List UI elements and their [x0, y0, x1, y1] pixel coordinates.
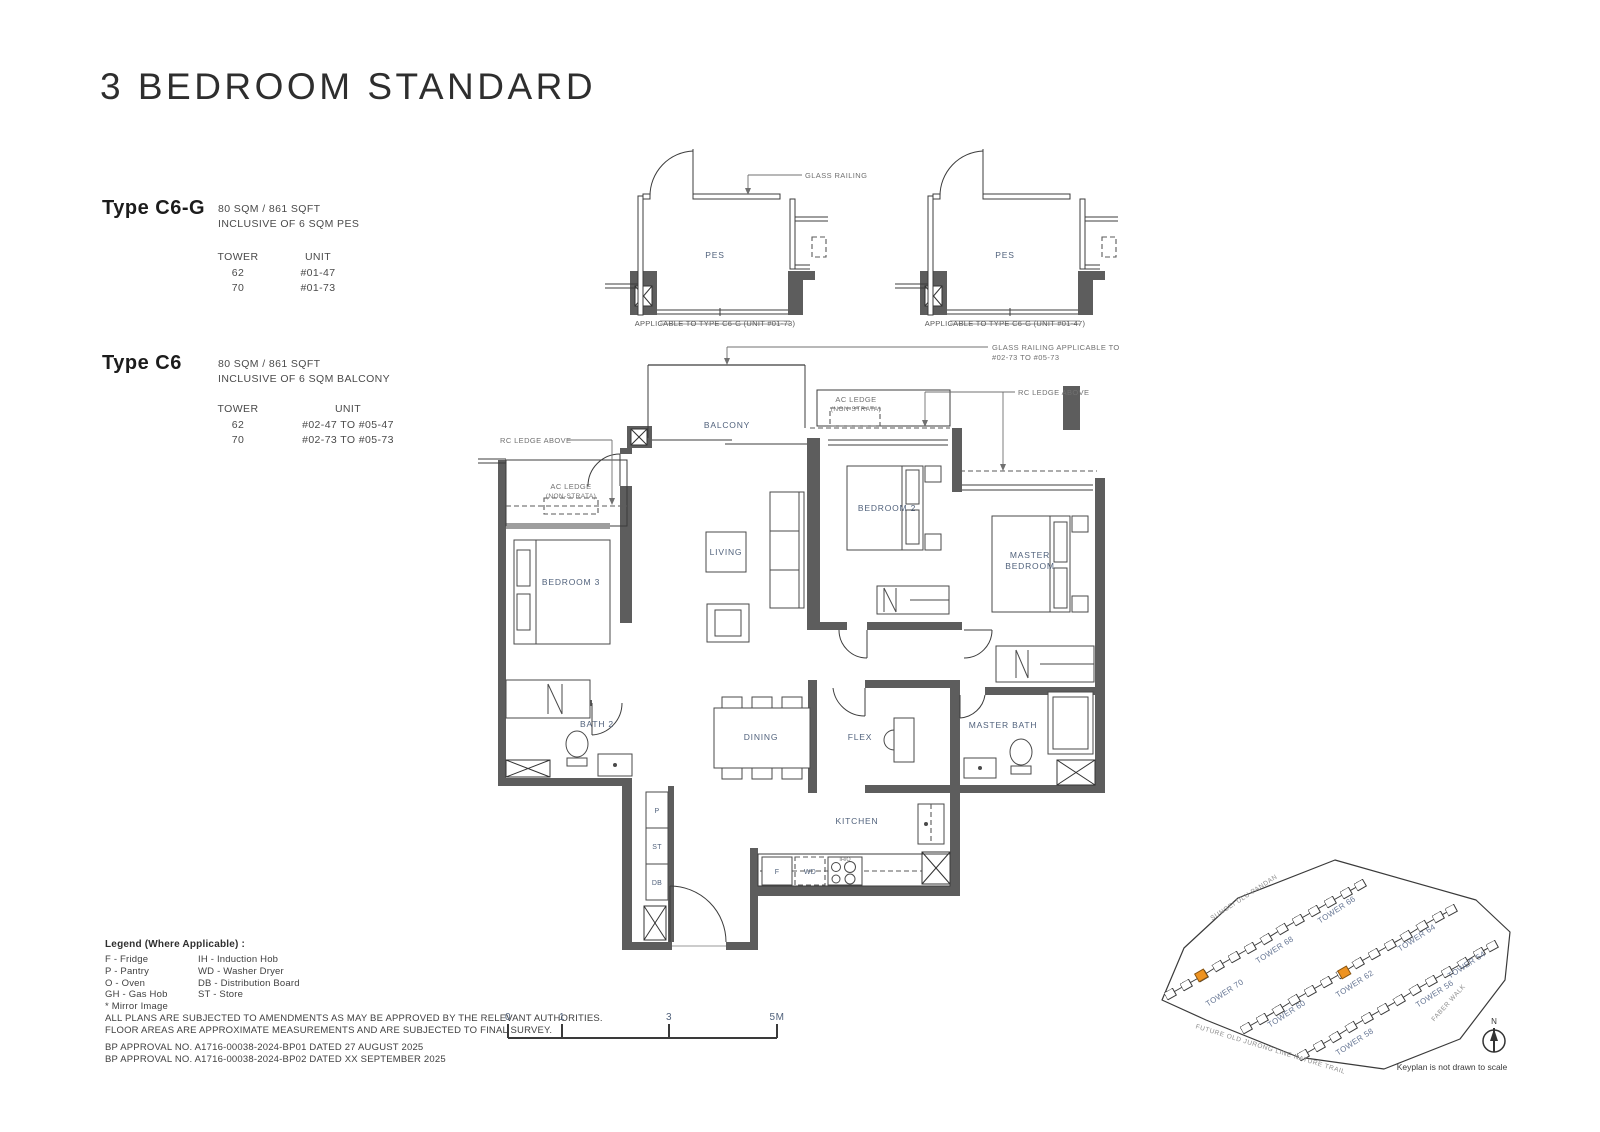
tower-label: TOWER 70 [1204, 977, 1245, 1008]
room-label-kitchen: KITCHEN [836, 816, 879, 826]
shaft-icon [644, 906, 666, 940]
street-label-sungei: SUNGEI ULU PANDAN [1209, 873, 1279, 922]
annotation-ac-ledge-left: AC LEDGE [550, 482, 591, 491]
shaft-icon [631, 429, 647, 445]
room-label-master-bedroom: BEDROOM [1005, 561, 1055, 571]
street-label-jurong-trail: FUTURE OLD JURONG LINE NATURE TRAIL [1195, 1023, 1346, 1075]
legend-item: F - Fridge [105, 954, 198, 966]
highlighted-unit [1195, 969, 1208, 982]
pes-caption-right: APPLICABLE TO TYPE C6-G (UNIT #01-47) [925, 319, 1086, 328]
keyplan: TOWER 70 TOWER 68 TOWER 66 TOWER 60 TOWE… [1148, 848, 1548, 1086]
tower-label: TOWER 58 [1334, 1026, 1375, 1057]
north-compass-icon: N [1483, 1017, 1505, 1052]
page-title: 3 BEDROOM STANDARD [100, 66, 596, 108]
legend-title: Legend (Where Applicable) : [105, 939, 300, 950]
annotation-ac-ledge-right: AC LEDGE [835, 395, 876, 404]
annotation-glass-railing: GLASS RAILING [745, 171, 867, 195]
type-c6g-table: TOWER UNIT 62 #01-47 70 #01-73 [213, 250, 373, 297]
annotation-rc-ledge-left: RC LEDGE ABOVE [500, 436, 571, 445]
room-label-master-bath: MASTER BATH [969, 720, 1038, 730]
room-label-balcony: BALCONY [704, 420, 750, 430]
unit-header: UNIT [263, 250, 373, 266]
shaft-icon [1057, 760, 1095, 785]
type-c6g-specs: 80 SQM / 861 SQFT INCLUSIVE OF 6 SQM PES [218, 202, 359, 232]
table-row: 70 #02-73 TO #05-73 [213, 433, 433, 449]
svg-text:#02-73 TO #05-73: #02-73 TO #05-73 [992, 353, 1059, 362]
room-label-bedroom3: BEDROOM 3 [542, 577, 600, 587]
room-label-flex: FLEX [848, 732, 872, 742]
legend: Legend (Where Applicable) : F - Fridge P… [105, 939, 300, 1013]
legend-item: WD - Washer Dryer [198, 966, 300, 978]
tower-label: TOWER 54 [1446, 949, 1487, 980]
room-label-bedroom2: BEDROOM 2 [858, 503, 916, 513]
type-c6-inclusive: INCLUSIVE OF 6 SQM BALCONY [218, 372, 390, 387]
table-header-row: TOWER UNIT [213, 250, 373, 266]
fixture-label-db: DB [652, 880, 662, 887]
annotation-glass-railing-note: GLASS RAILING APPLICABLE TO: [992, 343, 1120, 352]
legend-item: * Mirror Image [105, 1001, 198, 1013]
pes-diagrams: PES APPLICABLE TO TYPE C6-G (UNIT #01-73… [600, 138, 1160, 338]
type-c6-area: 80 SQM / 861 SQFT [218, 357, 390, 372]
table-header-row: TOWER UNIT [213, 402, 433, 418]
svg-text:(NON-STRATA): (NON-STRATA) [546, 493, 596, 500]
fixture-label-pantry: P [655, 808, 660, 815]
table-row: 62 #02-47 TO #05-47 [213, 418, 433, 434]
fixture-label-washer-dryer: WD [804, 869, 816, 876]
pes-caption-left: APPLICABLE TO TYPE C6-G (UNIT #01-73) [635, 319, 796, 328]
table-row: 62 #01-47 [213, 266, 373, 282]
furniture [506, 466, 1094, 900]
tower-label: TOWER 66 [1316, 894, 1357, 925]
tower-header: TOWER [213, 402, 263, 418]
legend-item: DB - Distribution Board [198, 978, 300, 990]
legend-item: O - Oven [105, 978, 198, 990]
table-row: 70 #01-73 [213, 281, 373, 297]
arrow-icon [724, 358, 730, 365]
type-c6-specs: 80 SQM / 861 SQFT INCLUSIVE OF 6 SQM BAL… [218, 357, 390, 387]
keyplan-caption: Keyplan is not drawn to scale [1397, 1062, 1508, 1072]
room-label-dining: DINING [744, 732, 779, 742]
scale-label: 3 [666, 1012, 672, 1023]
room-label-master-bedroom: MASTER [1010, 550, 1050, 560]
fixture-label-fridge: F [775, 869, 780, 876]
shaft-icon [922, 852, 950, 884]
arrow-icon [1000, 464, 1006, 471]
highlighted-unit [1338, 966, 1351, 979]
arrow-icon [609, 498, 615, 505]
room-label-pes: PES [995, 250, 1014, 260]
legend-item: P - Pantry [105, 966, 198, 978]
svg-text:(NON-STRATA): (NON-STRATA) [831, 406, 881, 413]
type-c6g-inclusive: INCLUSIVE OF 6 SQM PES [218, 217, 359, 232]
fixture-label-store: ST [652, 844, 662, 851]
tower-label: TOWER 60 [1266, 998, 1307, 1029]
main-floor-plan: BALCONY LIVING BEDROOM 3 BEDROOM 2 MASTE… [470, 340, 1120, 955]
fixture-label-hob: IH/O [839, 857, 851, 863]
north-label: N [1491, 1017, 1497, 1026]
pes-diagram-right: PES APPLICABLE TO TYPE C6-G (UNIT #01-47… [895, 149, 1118, 328]
tower-label: TOWER 68 [1254, 934, 1295, 965]
scale-label: 0 [505, 1012, 511, 1023]
scale-bar: 0 1 3 5M [480, 1008, 800, 1050]
unit-header: UNIT [263, 402, 433, 418]
type-c6g-name: Type C6-G [102, 197, 205, 220]
legend-item: ST - Store [198, 989, 300, 1001]
room-label-living: LIVING [710, 547, 743, 557]
legend-item: IH - Induction Hob [198, 954, 300, 966]
type-c6g-area: 80 SQM / 861 SQFT [218, 202, 359, 217]
room-label-pes: PES [705, 250, 724, 260]
annotation-rc-ledge-right: RC LEDGE ABOVE [1018, 388, 1089, 397]
pes-diagram-left: PES APPLICABLE TO TYPE C6-G (UNIT #01-73… [605, 149, 828, 328]
type-c6-name: Type C6 [102, 352, 182, 375]
legend-item: GH - Gas Hob [105, 989, 198, 1001]
type-c6-table: TOWER UNIT 62 #02-47 TO #05-47 70 #02-73… [213, 402, 433, 449]
glass-railing-label: GLASS RAILING [805, 171, 867, 180]
room-label-bath2: BATH 2 [580, 719, 614, 729]
bp-approvals: BP APPROVAL NO. A1716-00038-2024-BP01 DA… [105, 1042, 446, 1065]
scale-label: 5M [770, 1012, 785, 1023]
tower-header: TOWER [213, 250, 263, 266]
shaft-icon [506, 760, 550, 777]
scale-label: 1 [559, 1012, 565, 1023]
street-labels: SUNGEI ULU PANDAN FUTURE OLD JURONG LINE… [1195, 873, 1468, 1075]
